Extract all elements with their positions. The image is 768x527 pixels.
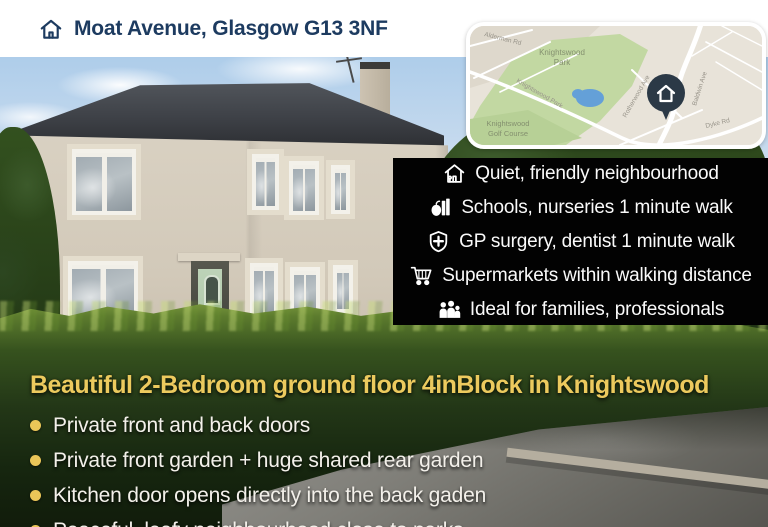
- bullet-dot: [30, 420, 41, 431]
- feature-label: Quiet, friendly neighbourhood: [475, 163, 718, 185]
- bullet-item: Peaceful, leafy neighbourhood close to p…: [30, 519, 486, 527]
- listing-bullets: Private front and back doors Private fro…: [30, 414, 486, 527]
- bullet-text: Kitchen door opens directly into the bac…: [53, 484, 486, 507]
- window-upper-left: [72, 149, 136, 215]
- feature-item: Schools, nurseries 1 minute walk: [428, 195, 732, 220]
- feature-label: Ideal for families, professionals: [470, 299, 724, 321]
- location-map: Knightswood Park Knightswood Golf Course…: [466, 22, 766, 149]
- window-upper-right-2: [289, 161, 319, 215]
- bullet-text: Private front and back doors: [53, 414, 310, 437]
- svg-text:Park: Park: [554, 58, 571, 67]
- kerb: [506, 447, 768, 491]
- feature-item: Ideal for families, professionals: [437, 297, 724, 322]
- property-flyer: Moat Avenue, Glasgow G13 3NF: [0, 0, 768, 527]
- family-icon: [437, 297, 462, 322]
- bullet-item: Private front and back doors: [30, 414, 486, 437]
- bullet-text: Private front garden + huge shared rear …: [53, 449, 483, 472]
- feature-label: Schools, nurseries 1 minute walk: [461, 197, 732, 219]
- map-label-golf: Knightswood: [487, 119, 530, 128]
- features-box: Quiet, friendly neighbourhood Schools, n…: [393, 158, 768, 325]
- bullet-text: Peaceful, leafy neighbourhood close to p…: [53, 519, 463, 527]
- map-label-park: Knightswood: [539, 48, 585, 57]
- listing-headline: Beautiful 2-Bedroom ground floor 4inBloc…: [30, 371, 768, 400]
- feature-item: Supermarkets within walking distance: [409, 263, 752, 288]
- medical-shield-icon: [426, 229, 451, 254]
- feature-item: GP surgery, dentist 1 minute walk: [426, 229, 735, 254]
- school-icon: [428, 195, 453, 220]
- window-upper-right-1: [252, 154, 279, 210]
- door-lintel: [178, 253, 240, 261]
- house-icon: [38, 16, 64, 42]
- address-text: Moat Avenue, Glasgow G13 3NF: [74, 17, 388, 41]
- bullet-dot: [30, 455, 41, 466]
- bullet-item: Kitchen door opens directly into the bac…: [30, 484, 486, 507]
- shopping-cart-icon: [409, 263, 434, 288]
- window-upper-right-3: [331, 165, 350, 214]
- feature-label: GP surgery, dentist 1 minute walk: [459, 231, 735, 253]
- feature-label: Supermarkets within walking distance: [442, 265, 752, 287]
- house-garden-icon: [442, 161, 467, 186]
- bullet-dot: [30, 490, 41, 501]
- bullet-item: Private front garden + huge shared rear …: [30, 449, 486, 472]
- svg-text:Golf Course: Golf Course: [488, 129, 528, 138]
- feature-item: Quiet, friendly neighbourhood: [442, 161, 718, 186]
